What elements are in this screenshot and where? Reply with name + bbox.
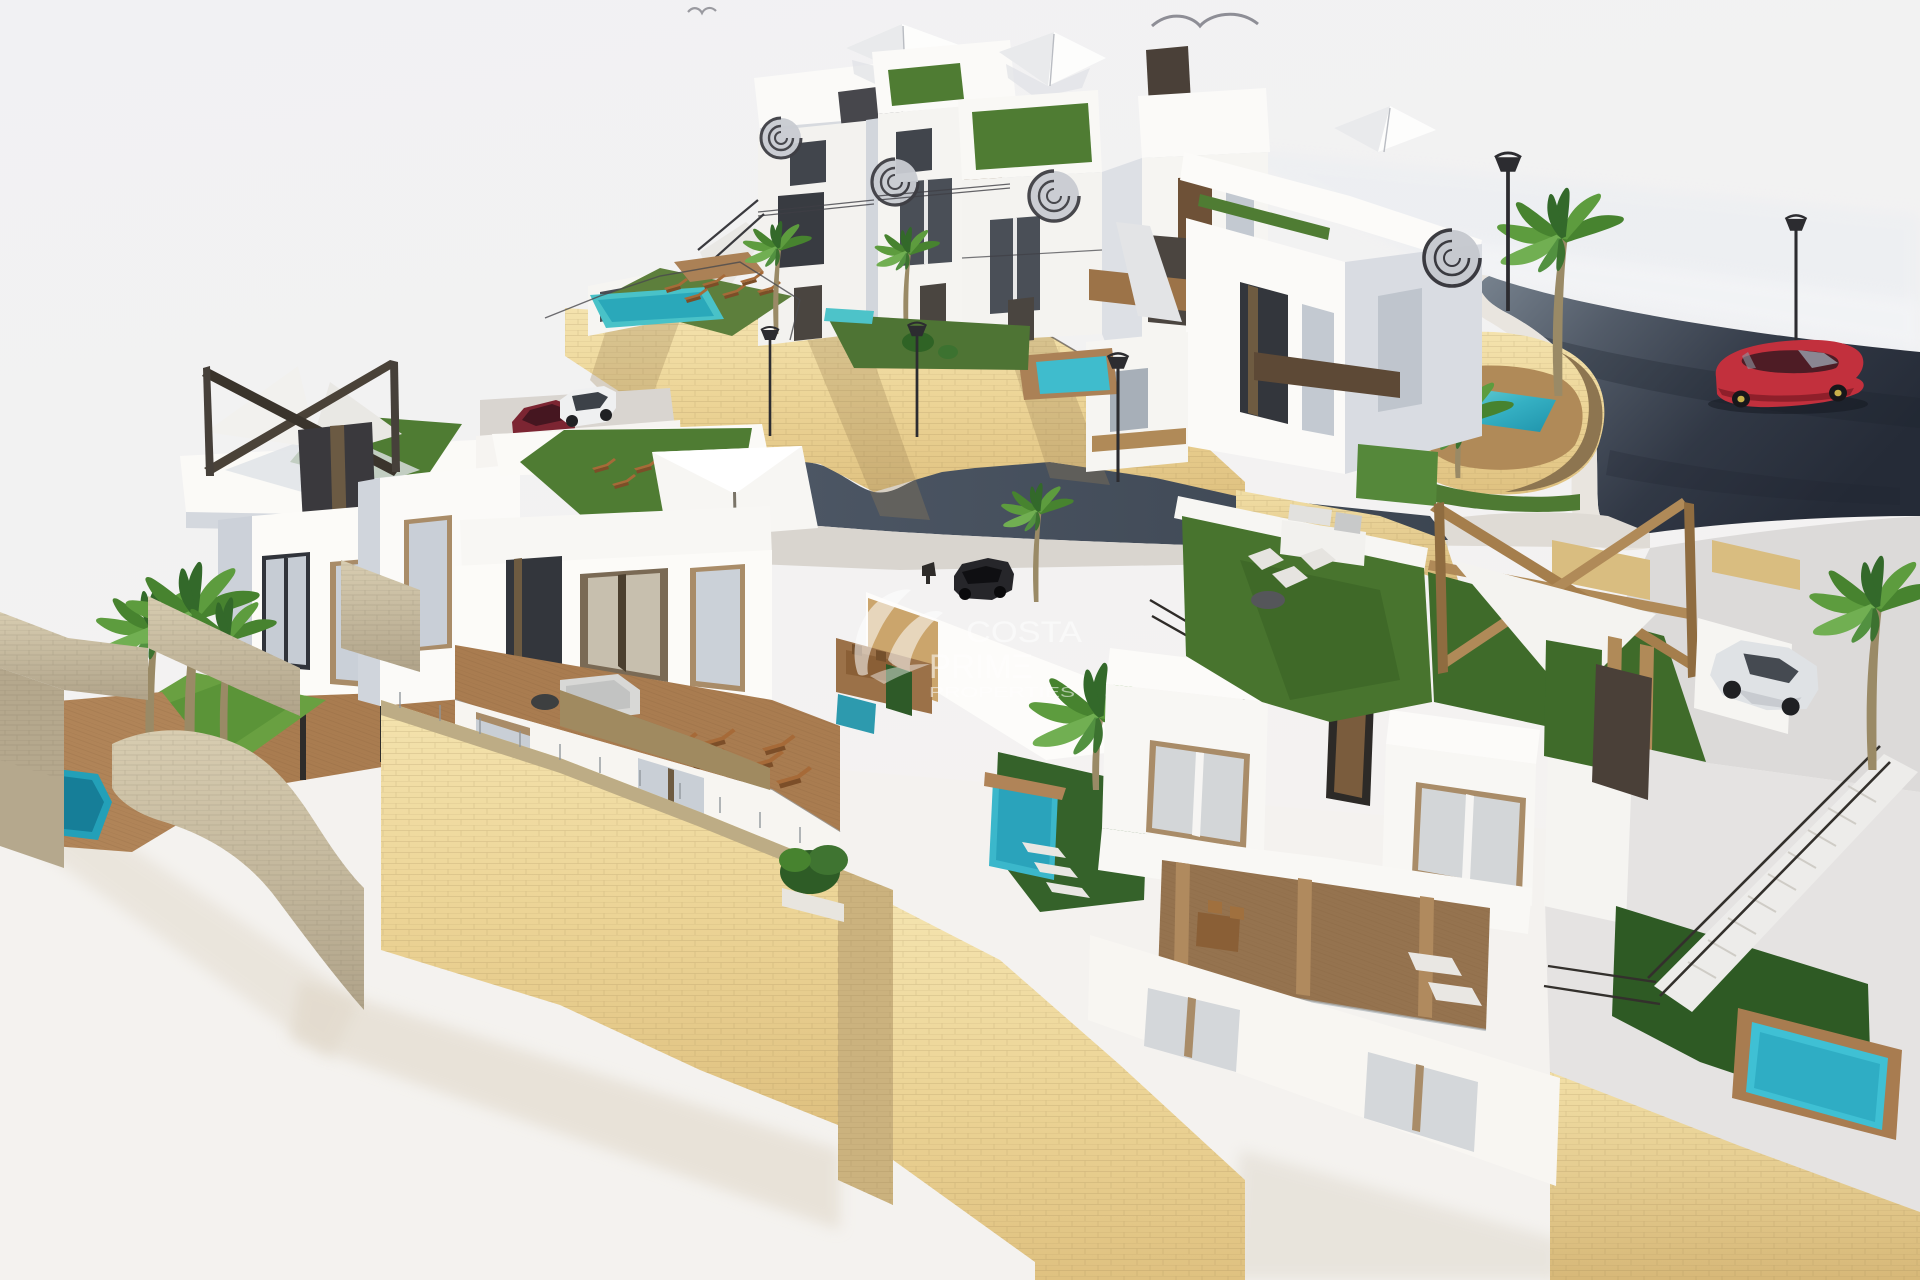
- svg-text:PRIMΞ: PRIMΞ: [929, 648, 1033, 686]
- svg-text:PROPERTIES: PROPERTIES: [929, 685, 1075, 701]
- svg-text:COSTA: COSTA: [966, 616, 1082, 649]
